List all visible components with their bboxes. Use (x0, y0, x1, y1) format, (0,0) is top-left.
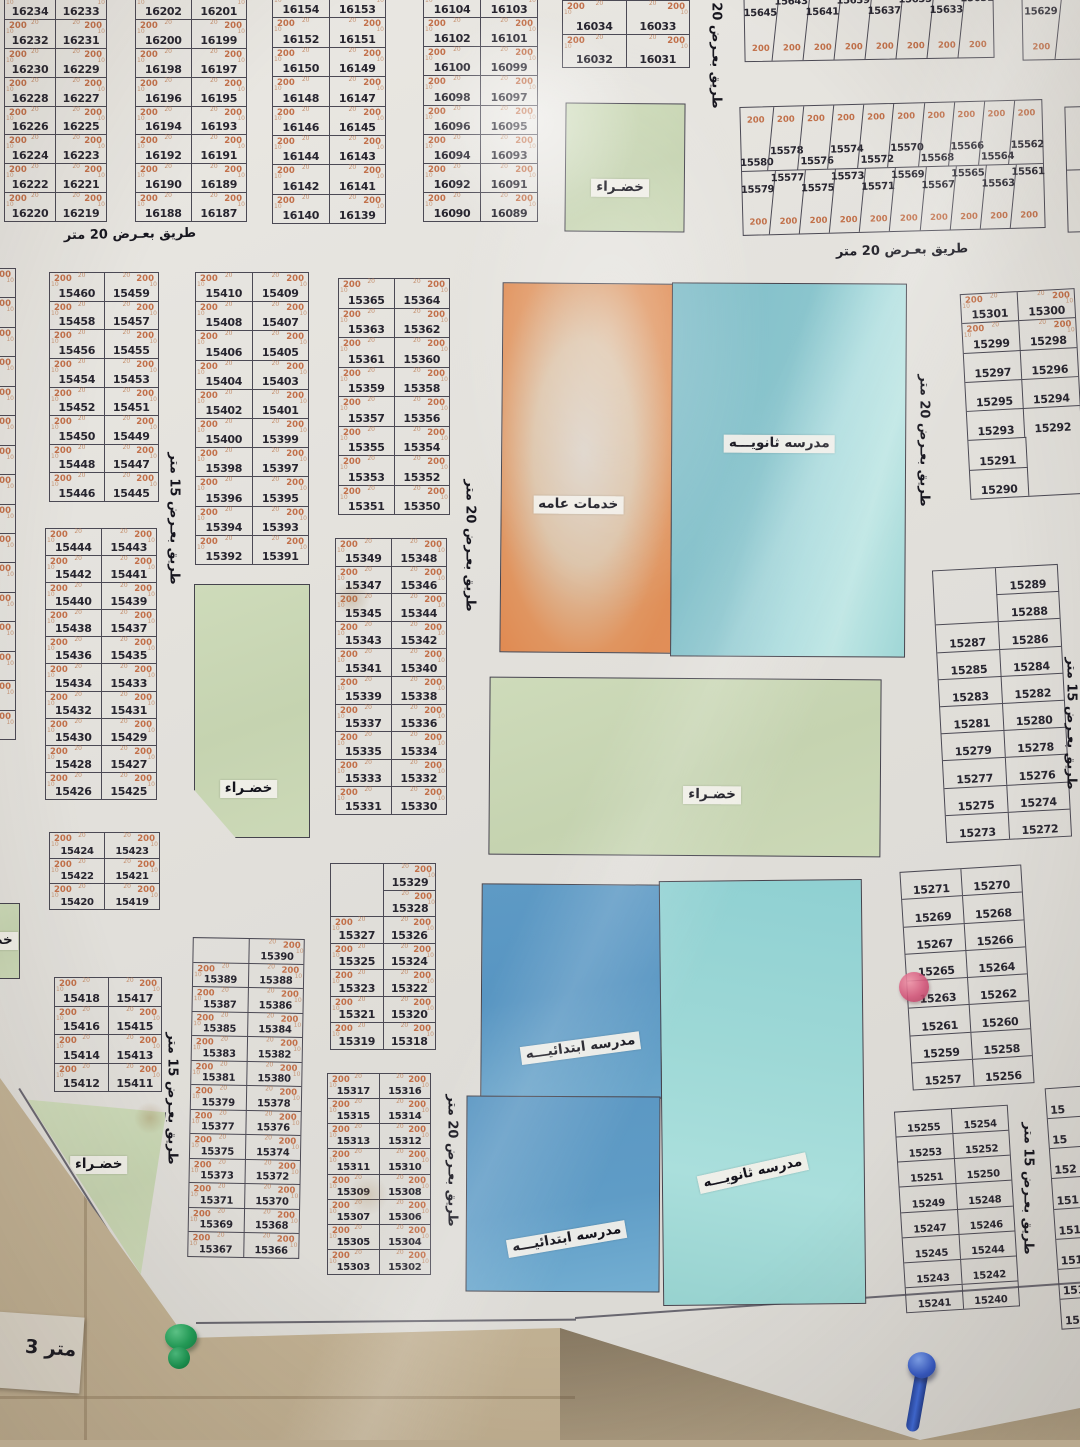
dim-20-label: 20 (120, 718, 128, 725)
plot-number: 16219 (56, 207, 106, 220)
dim-10-label: 10 (97, 201, 105, 208)
dim-10-label: 10 (292, 1120, 300, 1127)
plot-cell: 153162002010 (379, 1074, 431, 1098)
plot-cell: 162012002010 (191, 0, 247, 19)
dim-10-label: 10 (329, 1183, 337, 1190)
plot-cell: 153892002010 (193, 963, 248, 987)
dim-20-label: 20 (265, 1110, 273, 1117)
dim-10-label: 10 (337, 740, 345, 747)
plot-cell: 153122002010 (379, 1124, 431, 1148)
plot-cell: 15290 (970, 468, 1028, 499)
plot-cell: 154122002010 (55, 1064, 108, 1092)
dim-20-label: 20 (123, 883, 131, 890)
dim-10-label: 10 (97, 57, 105, 64)
plot-cell: 2002010 (0, 269, 15, 297)
plot-cell: 161522002010 (273, 18, 329, 46)
dim-10-label: 10 (421, 1157, 429, 1164)
plot-number: 15405 (253, 346, 309, 359)
dim-20-label: 20 (164, 192, 172, 199)
plot-cell: 153332002010 (336, 760, 391, 787)
plot-cell: 15249 (900, 1184, 957, 1211)
dim-10-label: 10 (376, 0, 384, 4)
dim-20-label: 20 (123, 832, 131, 839)
dim-10-label: 10 (237, 172, 245, 179)
plot-number: 15399 (253, 433, 309, 446)
plot-cell: 161872002010 (191, 193, 247, 221)
plot-cell: 153782002010 (245, 1086, 301, 1110)
plot-cell: 154382002010 (46, 610, 101, 636)
plot-number: 15414 (55, 1049, 108, 1062)
plot-cell: 161392002010 (329, 195, 386, 223)
dim-20-label: 20 (72, 192, 80, 199)
dim-10-label: 10 (190, 1191, 198, 1198)
plot-row: 15188 (1060, 1293, 1080, 1329)
plot-row: 153902002010 (248, 939, 304, 964)
plot-row: 15 (1046, 1083, 1080, 1118)
dim-10-label: 10 (440, 435, 448, 442)
plot-row: 161002002010160992002010 (424, 46, 537, 75)
dim-20-label: 20 (596, 34, 604, 41)
plot-cell: 153762002010 (245, 1111, 301, 1135)
dim-20-label: 20 (31, 134, 39, 141)
dim-10-label: 10 (197, 369, 205, 376)
dim-20-label: 20 (123, 301, 131, 308)
plot-number: 15391 (253, 550, 309, 563)
plot-cell: 154252002010 (101, 773, 157, 799)
plot-cell: 161892002010 (191, 164, 247, 192)
dim-20-label: 20 (164, 19, 172, 26)
plot-cell: 153202002010 (383, 997, 436, 1023)
dim-20-label: 20 (649, 34, 657, 41)
plot-row: 160922002010160912002010 (424, 163, 537, 192)
dim-10-label: 10 (149, 424, 157, 431)
dim-10-label: 10 (193, 1020, 201, 1027)
dim-10-label: 10 (47, 618, 55, 625)
plot-cell: 162332002010 (55, 0, 106, 19)
plot-cell: 154012002010 (252, 390, 309, 418)
plot-cell: 153742002010 (244, 1135, 300, 1159)
plot-row: 153282002010 (383, 890, 436, 917)
dim-10-label: 10 (237, 57, 245, 64)
dim-20-label: 20 (123, 272, 131, 279)
dim-20-label: 20 (210, 77, 218, 84)
plot-cell: 15246 (957, 1206, 1015, 1234)
dim-10-label: 10 (274, 144, 282, 151)
dim-20-label: 20 (302, 47, 310, 54)
plot-row: 20020102002010 (0, 710, 15, 739)
plot-row: 20020102002010 (0, 474, 15, 503)
plot-cell: 154522002010 (50, 388, 104, 416)
plot-row: 153892002010153882002010 (193, 962, 303, 988)
dim-20-label: 20 (72, 19, 80, 26)
plot-cell: 154222002010 (50, 859, 104, 884)
plot-number: 15292 (1025, 420, 1080, 436)
dim-10-label: 10 (376, 85, 384, 92)
plot-number: 15631 (955, 0, 998, 4)
plot-row: 154562002010154552002010 (50, 329, 158, 358)
dim-20-label: 20 (123, 415, 131, 422)
dim-20-label: 20 (367, 308, 375, 315)
plot-number: 15401 (253, 404, 309, 417)
plot-row: 162022002010162012002010 (136, 0, 246, 19)
plot-number: 15418 (55, 992, 108, 1005)
dim-10-label: 10 (51, 867, 59, 874)
dim-10-label: 10 (147, 591, 155, 598)
plot-row: 153612002010153602002010 (339, 337, 449, 367)
zone-school-blue: مدرسه ابتدائيـــه (480, 883, 663, 1098)
plot-number: 16225 (56, 120, 106, 133)
dim-10-label: 10 (329, 1107, 337, 1114)
plot-row: 153472002010153462002010 (336, 566, 446, 594)
plot-row: 153432002010153422002010 (336, 621, 446, 649)
plot-cell: 15200 (1067, 169, 1080, 232)
dim-20-label: 20 (210, 106, 218, 113)
plot-cell: 153142002010 (379, 1099, 431, 1123)
dim-20-label: 20 (72, 77, 80, 84)
dim-10-label: 10 (149, 367, 157, 374)
dim-10-label: 10 (237, 28, 245, 35)
plot-row: 153492002010153482002010 (336, 539, 446, 566)
plot-cell: 153402002010 (391, 649, 447, 676)
plot-cell: 153442002010 (391, 594, 447, 621)
dim-10-label: 10 (299, 398, 307, 405)
road-width-label: طريق بعـرض 15 متر (165, 1019, 180, 1179)
dim-10-label: 10 (294, 972, 302, 979)
plot-cell: 153542002010 (394, 427, 450, 456)
dim-10-label: 10 (337, 657, 345, 664)
plot-row: 20020102002010 (0, 297, 15, 326)
plot-cell: 154602002010 (50, 273, 104, 301)
plot-cell: 153362002010 (391, 705, 447, 732)
plot-cell: 154492002010 (104, 416, 159, 444)
plot-cell: 15284 (999, 646, 1063, 675)
dim-10-label: 10 (149, 281, 157, 288)
plot-cell: 153622002010 (394, 309, 450, 338)
plot-row: 153412002010153402002010 (336, 648, 446, 676)
plot-cell: 15297 (964, 351, 1021, 382)
plot-cell: 153602002010 (394, 338, 450, 367)
dim-20-label: 20 (354, 1199, 362, 1206)
plot-cell: 153882002010 (247, 964, 303, 988)
dim-10-label: 10 (6, 395, 14, 402)
area-200-label: 200 (1014, 210, 1044, 221)
plot-number: 15361 (339, 353, 394, 366)
plot-cell: 153702002010 (244, 1184, 300, 1208)
red-pushpin (899, 972, 929, 1002)
plot-number: 16220 (5, 207, 55, 220)
plot-block-b15349: 1534920020101534820020101534720020101534… (335, 538, 447, 815)
plot-cell: 153422002010 (391, 622, 447, 649)
plot-cell: 153862002010 (247, 988, 303, 1012)
plot-cell: 153462002010 (391, 567, 447, 594)
plot-number: 15449 (105, 430, 159, 443)
plot-row: 154422002010154412002010 (46, 555, 156, 582)
dim-10-label: 10 (425, 201, 433, 208)
dim-20-label: 20 (74, 609, 82, 616)
dim-20-label: 20 (126, 977, 134, 984)
plot-row: 153312002010153302002010 (336, 786, 446, 814)
plot-cell: 154512002010 (104, 388, 159, 416)
dim-10-label: 10 (150, 892, 158, 899)
plot-cell: 151 (1052, 1173, 1080, 1208)
dim-10-label: 10 (426, 978, 434, 985)
plot-cell: 161952002010 (191, 78, 247, 106)
dim-10-label: 10 (962, 303, 970, 310)
plot-number: 16229 (56, 63, 106, 76)
dim-10-label: 10 (337, 768, 345, 775)
dim-10-label: 10 (237, 143, 245, 150)
dim-20-label: 20 (396, 1073, 404, 1080)
dim-20-label: 20 (413, 308, 421, 315)
dim-10-label: 10 (51, 396, 59, 403)
plot-cell: 15 (1046, 1083, 1080, 1118)
plot-cell: 15264 (965, 947, 1027, 977)
dim-20-label: 20 (410, 759, 418, 766)
plot-row: 154362002010154352002010 (46, 636, 156, 663)
plot-cell: 2002010 (0, 681, 15, 709)
plot-number: 15398 (196, 462, 252, 475)
dim-20-label: 20 (126, 1034, 134, 1041)
plot-number: 16228 (5, 92, 55, 105)
dim-20-label: 20 (396, 1199, 404, 1206)
dim-20-label: 20 (31, 163, 39, 170)
plot-row: 154302002010154292002010 (46, 718, 156, 745)
plot-row: 153592002010153582002010 (339, 367, 449, 397)
plot-cell: 153482002010 (391, 539, 447, 566)
plot-cell: 161882002010 (136, 193, 191, 221)
plot-row: 153192002010153182002010 (331, 1022, 435, 1049)
plot-cell: 153392002010 (336, 677, 391, 704)
plot-cell: 153272002010 (331, 917, 383, 943)
plot-block-b15629: 15629200 (1021, 0, 1080, 61)
plot-number: 16141 (330, 180, 386, 193)
dim-20-label: 20 (164, 48, 172, 55)
plot-cell: 153692002010 (189, 1208, 244, 1232)
dim-20-label: 20 (78, 832, 86, 839)
dim-10-label: 10 (51, 281, 59, 288)
dim-20-label: 20 (217, 1207, 225, 1214)
dim-10-label: 10 (47, 537, 55, 544)
plot-number: 16194 (136, 120, 191, 133)
plot-cell: 153572002010 (339, 397, 394, 426)
dim-10-label: 10 (564, 9, 572, 16)
plot-cell: 15260 (968, 1002, 1030, 1032)
dim-20-label: 20 (164, 77, 172, 84)
dim-20-label: 20 (222, 962, 230, 969)
plot-strip-row: 15200 (1065, 106, 1080, 169)
dim-10-label: 10 (47, 781, 55, 788)
plot-strip-row: 15200 (1067, 168, 1080, 232)
plot-number: 15358 (395, 382, 450, 395)
dim-10-label: 10 (680, 43, 688, 50)
dim-20-label: 20 (217, 1232, 225, 1239)
plot-block-b16034: 1603420020101603320020101603220020101603… (562, 0, 690, 68)
plot-cell: 153592002010 (339, 368, 394, 397)
dim-20-label: 20 (410, 676, 418, 683)
dim-20-label: 20 (225, 447, 233, 454)
plot-cell: 154262002010 (46, 773, 101, 799)
dim-10-label: 10 (337, 713, 345, 720)
dim-10-label: 10 (191, 1167, 199, 1174)
green-pushpin (165, 1324, 201, 1380)
dim-10-label: 10 (291, 1193, 299, 1200)
zone-label: مدرسه ثانويـــه (697, 1152, 809, 1194)
dim-20-label: 20 (410, 566, 418, 573)
plot-block-b15329: 1532920020101532820020101532720020101532… (330, 863, 436, 1050)
dim-20-label: 20 (396, 1224, 404, 1231)
dim-20-label: 20 (272, 476, 280, 483)
dim-10-label: 10 (6, 483, 14, 490)
dim-20-label: 20 (72, 163, 80, 170)
plot-number: 16099 (481, 61, 537, 74)
dim-20-label: 20 (396, 1098, 404, 1105)
plot-cell: 153752002010 (190, 1134, 245, 1158)
plot-cell: 2002010 (0, 593, 15, 621)
dim-10-label: 10 (437, 630, 445, 637)
plot-number: 15396 (196, 492, 252, 505)
dim-10-label: 10 (47, 672, 55, 679)
plot-cell: 161902002010 (136, 164, 191, 192)
plot-cell: 15 (1048, 1113, 1080, 1148)
dim-20-label: 20 (123, 387, 131, 394)
dim-10-label: 10 (437, 740, 445, 747)
dim-10-label: 10 (47, 727, 55, 734)
plot-row: 161962002010161952002010 (136, 77, 246, 106)
plot-cell: 1519 (1056, 1234, 1080, 1269)
plot-block-b15580: 1558020015578200155762001557420015572200… (739, 99, 1045, 236)
dim-10-label: 10 (437, 657, 445, 664)
dim-10-label: 10 (376, 173, 384, 180)
plot-number: 16143 (330, 150, 386, 163)
plot-cell: 15291 (968, 438, 1026, 469)
plot-cell: 160902002010 (424, 193, 480, 221)
dim-10-label: 10 (6, 336, 14, 343)
plot-number: 15410 (196, 287, 252, 300)
dim-10-label: 10 (147, 727, 155, 734)
dim-20-label: 20 (413, 485, 421, 492)
plot-number: 15406 (196, 346, 252, 359)
plot-row: 154522002010154512002010 (50, 387, 158, 416)
dim-20-label: 20 (401, 943, 409, 950)
plot-cell: 15251 (898, 1159, 955, 1186)
plot-number: 16226 (5, 120, 55, 133)
plot-cell: 153002002010 (1017, 289, 1075, 320)
dim-10-label: 10 (329, 1132, 337, 1139)
dim-20-label: 20 (120, 582, 128, 589)
dim-20-label: 20 (74, 582, 82, 589)
dim-10-label: 10 (329, 1082, 337, 1089)
plot-row: 160942002010160932002010 (424, 134, 537, 163)
dim-10-label: 10 (340, 376, 348, 383)
plot-number: 16103 (481, 3, 537, 16)
plot-row: 153232002010153222002010 (331, 969, 435, 996)
dim-10-label: 10 (293, 1070, 301, 1077)
plot-cell: 153262002010 (383, 917, 436, 943)
plot-cell: 153232002010 (331, 970, 383, 996)
dim-20-label: 20 (225, 535, 233, 542)
plot-row: 154502002010154492002010 (50, 415, 158, 444)
plot-number: 16148 (273, 92, 329, 105)
dim-20-label: 20 (500, 163, 508, 170)
dim-20-label: 20 (164, 163, 172, 170)
subdivision-map: 1623420020101623320020101623220020101623… (0, 0, 1080, 1440)
dim-20-label: 20 (367, 455, 375, 462)
dim-10-label: 10 (425, 84, 433, 91)
dim-10-label: 10 (6, 0, 14, 6)
plot-row: 153032002010153022002010 (328, 1249, 430, 1274)
plot-row: 154582002010154572002010 (50, 301, 158, 330)
plot-cell: 15257 (912, 1060, 973, 1090)
dim-20-label: 20 (649, 0, 657, 7)
plot-cell: 15293 (967, 409, 1024, 440)
dim-10-label: 10 (6, 542, 14, 549)
plot-cell: 154462002010 (50, 473, 104, 501)
dim-10-label: 10 (426, 1031, 434, 1038)
plot-cell: 153722002010 (244, 1160, 300, 1184)
road-width-label: طريق بعـرض 20 متر (822, 241, 982, 260)
plot-row: 15288 (996, 591, 1060, 621)
plot-block-b15301: 1530120020101530020020101529920020101529… (960, 288, 1080, 500)
dim-20-label: 20 (82, 1006, 90, 1013)
dim-20-label: 20 (302, 164, 310, 171)
area-200-label: 200 (1023, 42, 1059, 53)
area-200-label: 200 (891, 111, 921, 122)
plot-row: 20020102002010 (0, 621, 15, 650)
plot-cell: 154212002010 (104, 859, 159, 884)
plot-cell: 15200 (1065, 106, 1080, 169)
plot-cell: 153872002010 (193, 987, 248, 1011)
plot-cell: 15256 (972, 1056, 1034, 1086)
plot-cell: 153412002010 (336, 649, 391, 676)
plot-row: 153942002010153932002010 (196, 506, 308, 535)
dim-20-label: 20 (367, 485, 375, 492)
plot-number: 15413 (109, 1049, 162, 1062)
plot-cell: 154282002010 (46, 746, 101, 772)
plot-cell: 2002010 (0, 298, 15, 326)
plot-cell: 153302002010 (391, 787, 447, 814)
plot-number: 16154 (273, 3, 329, 16)
plot-number: 16033 (627, 20, 690, 33)
plot-row: 161442002010161432002010 (273, 135, 385, 164)
plot-cell: 162232002010 (55, 135, 106, 163)
dim-10-label: 10 (150, 867, 158, 874)
plot-cell: 154192002010 (104, 884, 159, 909)
plot-cell: 161932002010 (191, 107, 247, 135)
plot-cell: 153072002010 (328, 1200, 379, 1224)
dim-20-label: 20 (364, 648, 372, 655)
dim-10-label: 10 (47, 700, 55, 707)
plot-number: 16188 (136, 207, 191, 220)
plot-row: 20020102002010 (0, 356, 15, 385)
dim-20-label: 20 (123, 358, 131, 365)
plot-cell: 162322002010 (5, 20, 55, 48)
dim-10-label: 10 (528, 201, 536, 208)
plot-row: 154162002010154152002010 (55, 1006, 161, 1035)
zone-green: خضـراء (194, 584, 310, 838)
plot-cell: 15266 (963, 920, 1025, 950)
plot-row: 153072002010153062002010 (328, 1199, 430, 1224)
dim-10-label: 10 (340, 346, 348, 353)
plot-cell: 2002010 (0, 416, 15, 444)
plot-row: 153152002010153142002010 (328, 1098, 430, 1123)
plot-cell: 154312002010 (101, 692, 157, 718)
dim-10-label: 10 (51, 841, 59, 848)
dim-20-label: 20 (268, 938, 276, 945)
plot-cell: 15241 (906, 1285, 963, 1312)
plot-cell: 160922002010 (424, 164, 480, 192)
dim-20-label: 20 (210, 134, 218, 141)
plot-row: 161542002010161532002010 (273, 0, 385, 17)
